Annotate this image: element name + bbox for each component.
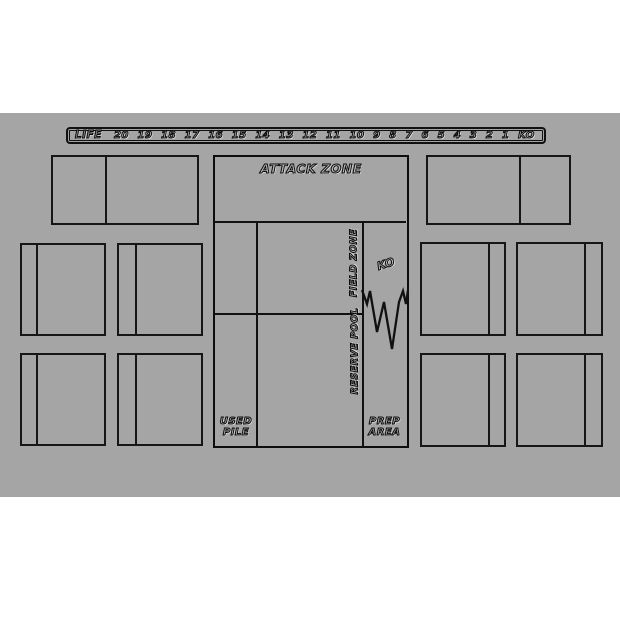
life-cell[interactable]: 1 <box>502 131 509 141</box>
life-cell[interactable]: 3 <box>470 131 477 141</box>
life-cell[interactable]: 14 <box>255 131 270 141</box>
slot-divider-line <box>488 355 490 445</box>
card-slot-left-2[interactable] <box>117 243 203 336</box>
life-cell[interactable]: 4 <box>454 131 461 141</box>
life-cell[interactable]: 6 <box>421 131 428 141</box>
life-cell[interactable]: 17 <box>185 131 200 141</box>
life-cell[interactable]: 7 <box>405 131 412 141</box>
ko-zone-label: KO <box>376 256 397 272</box>
life-cell[interactable]: 11 <box>326 131 341 141</box>
slot-divider-line <box>36 355 38 444</box>
attack-zone-divider-line <box>215 221 406 223</box>
ko-burst-tear <box>358 281 412 355</box>
card-slot-pair-top-right[interactable] <box>426 155 571 225</box>
card-slot-right-4[interactable] <box>516 353 603 447</box>
card-slot-right-1[interactable] <box>420 242 506 336</box>
used-pile-line1: USED <box>215 416 257 427</box>
slot-divider-line <box>105 157 107 223</box>
slot-divider-line <box>584 355 586 445</box>
life-cell[interactable]: 10 <box>350 131 365 141</box>
life-cell[interactable]: 8 <box>389 131 396 141</box>
card-slot-right-3[interactable] <box>420 353 506 447</box>
slot-divider-line <box>135 355 137 444</box>
prep-area-label: PREP AREA <box>363 416 406 438</box>
card-slot-left-3[interactable] <box>20 353 106 446</box>
card-slot-pair-top-left[interactable] <box>51 155 199 225</box>
slot-divider-line <box>519 157 521 223</box>
life-cell[interactable]: 2 <box>486 131 493 141</box>
field-reserve-divider-line <box>215 313 364 315</box>
slot-divider-line <box>584 244 586 334</box>
life-cell[interactable]: 19 <box>138 131 153 141</box>
attack-zone-label: ATTACK ZONE <box>215 163 407 176</box>
card-slot-right-2[interactable] <box>516 242 603 336</box>
prep-area-line2: AREA <box>363 427 406 438</box>
card-slot-left-4[interactable] <box>117 353 203 446</box>
life-cell[interactable]: 18 <box>161 131 176 141</box>
life-cell[interactable]: 5 <box>438 131 445 141</box>
life-cell[interactable]: 15 <box>232 131 247 141</box>
prep-area-line1: PREP <box>363 416 406 427</box>
slot-divider-line <box>135 245 137 334</box>
game-board: ATTACK ZONE FIELD ZONE KO RESERVE POOL U… <box>213 155 409 448</box>
used-pile-divider-line <box>256 221 258 446</box>
life-cells: 20 19 18 17 16 15 14 13 12 11 10 9 8 7 6… <box>102 131 544 141</box>
slot-divider-line <box>36 245 38 334</box>
life-cell[interactable]: KO <box>518 131 535 141</box>
life-cell[interactable]: 12 <box>302 131 317 141</box>
life-cell[interactable]: 9 <box>373 131 380 141</box>
life-cell[interactable]: 13 <box>279 131 294 141</box>
playmat-image: LIFE 20 19 18 17 16 15 14 13 12 11 10 9 … <box>0 0 620 620</box>
life-cell[interactable]: 16 <box>208 131 223 141</box>
life-track-label: LIFE <box>75 130 102 141</box>
slot-divider-line <box>488 244 490 334</box>
life-track: LIFE 20 19 18 17 16 15 14 13 12 11 10 9 … <box>66 127 546 144</box>
playmat: LIFE 20 19 18 17 16 15 14 13 12 11 10 9 … <box>0 113 620 497</box>
card-slot-left-1[interactable] <box>20 243 106 336</box>
life-cell[interactable]: 20 <box>114 131 129 141</box>
used-pile-label: USED PILE <box>215 416 257 438</box>
used-pile-line2: PILE <box>215 427 257 438</box>
